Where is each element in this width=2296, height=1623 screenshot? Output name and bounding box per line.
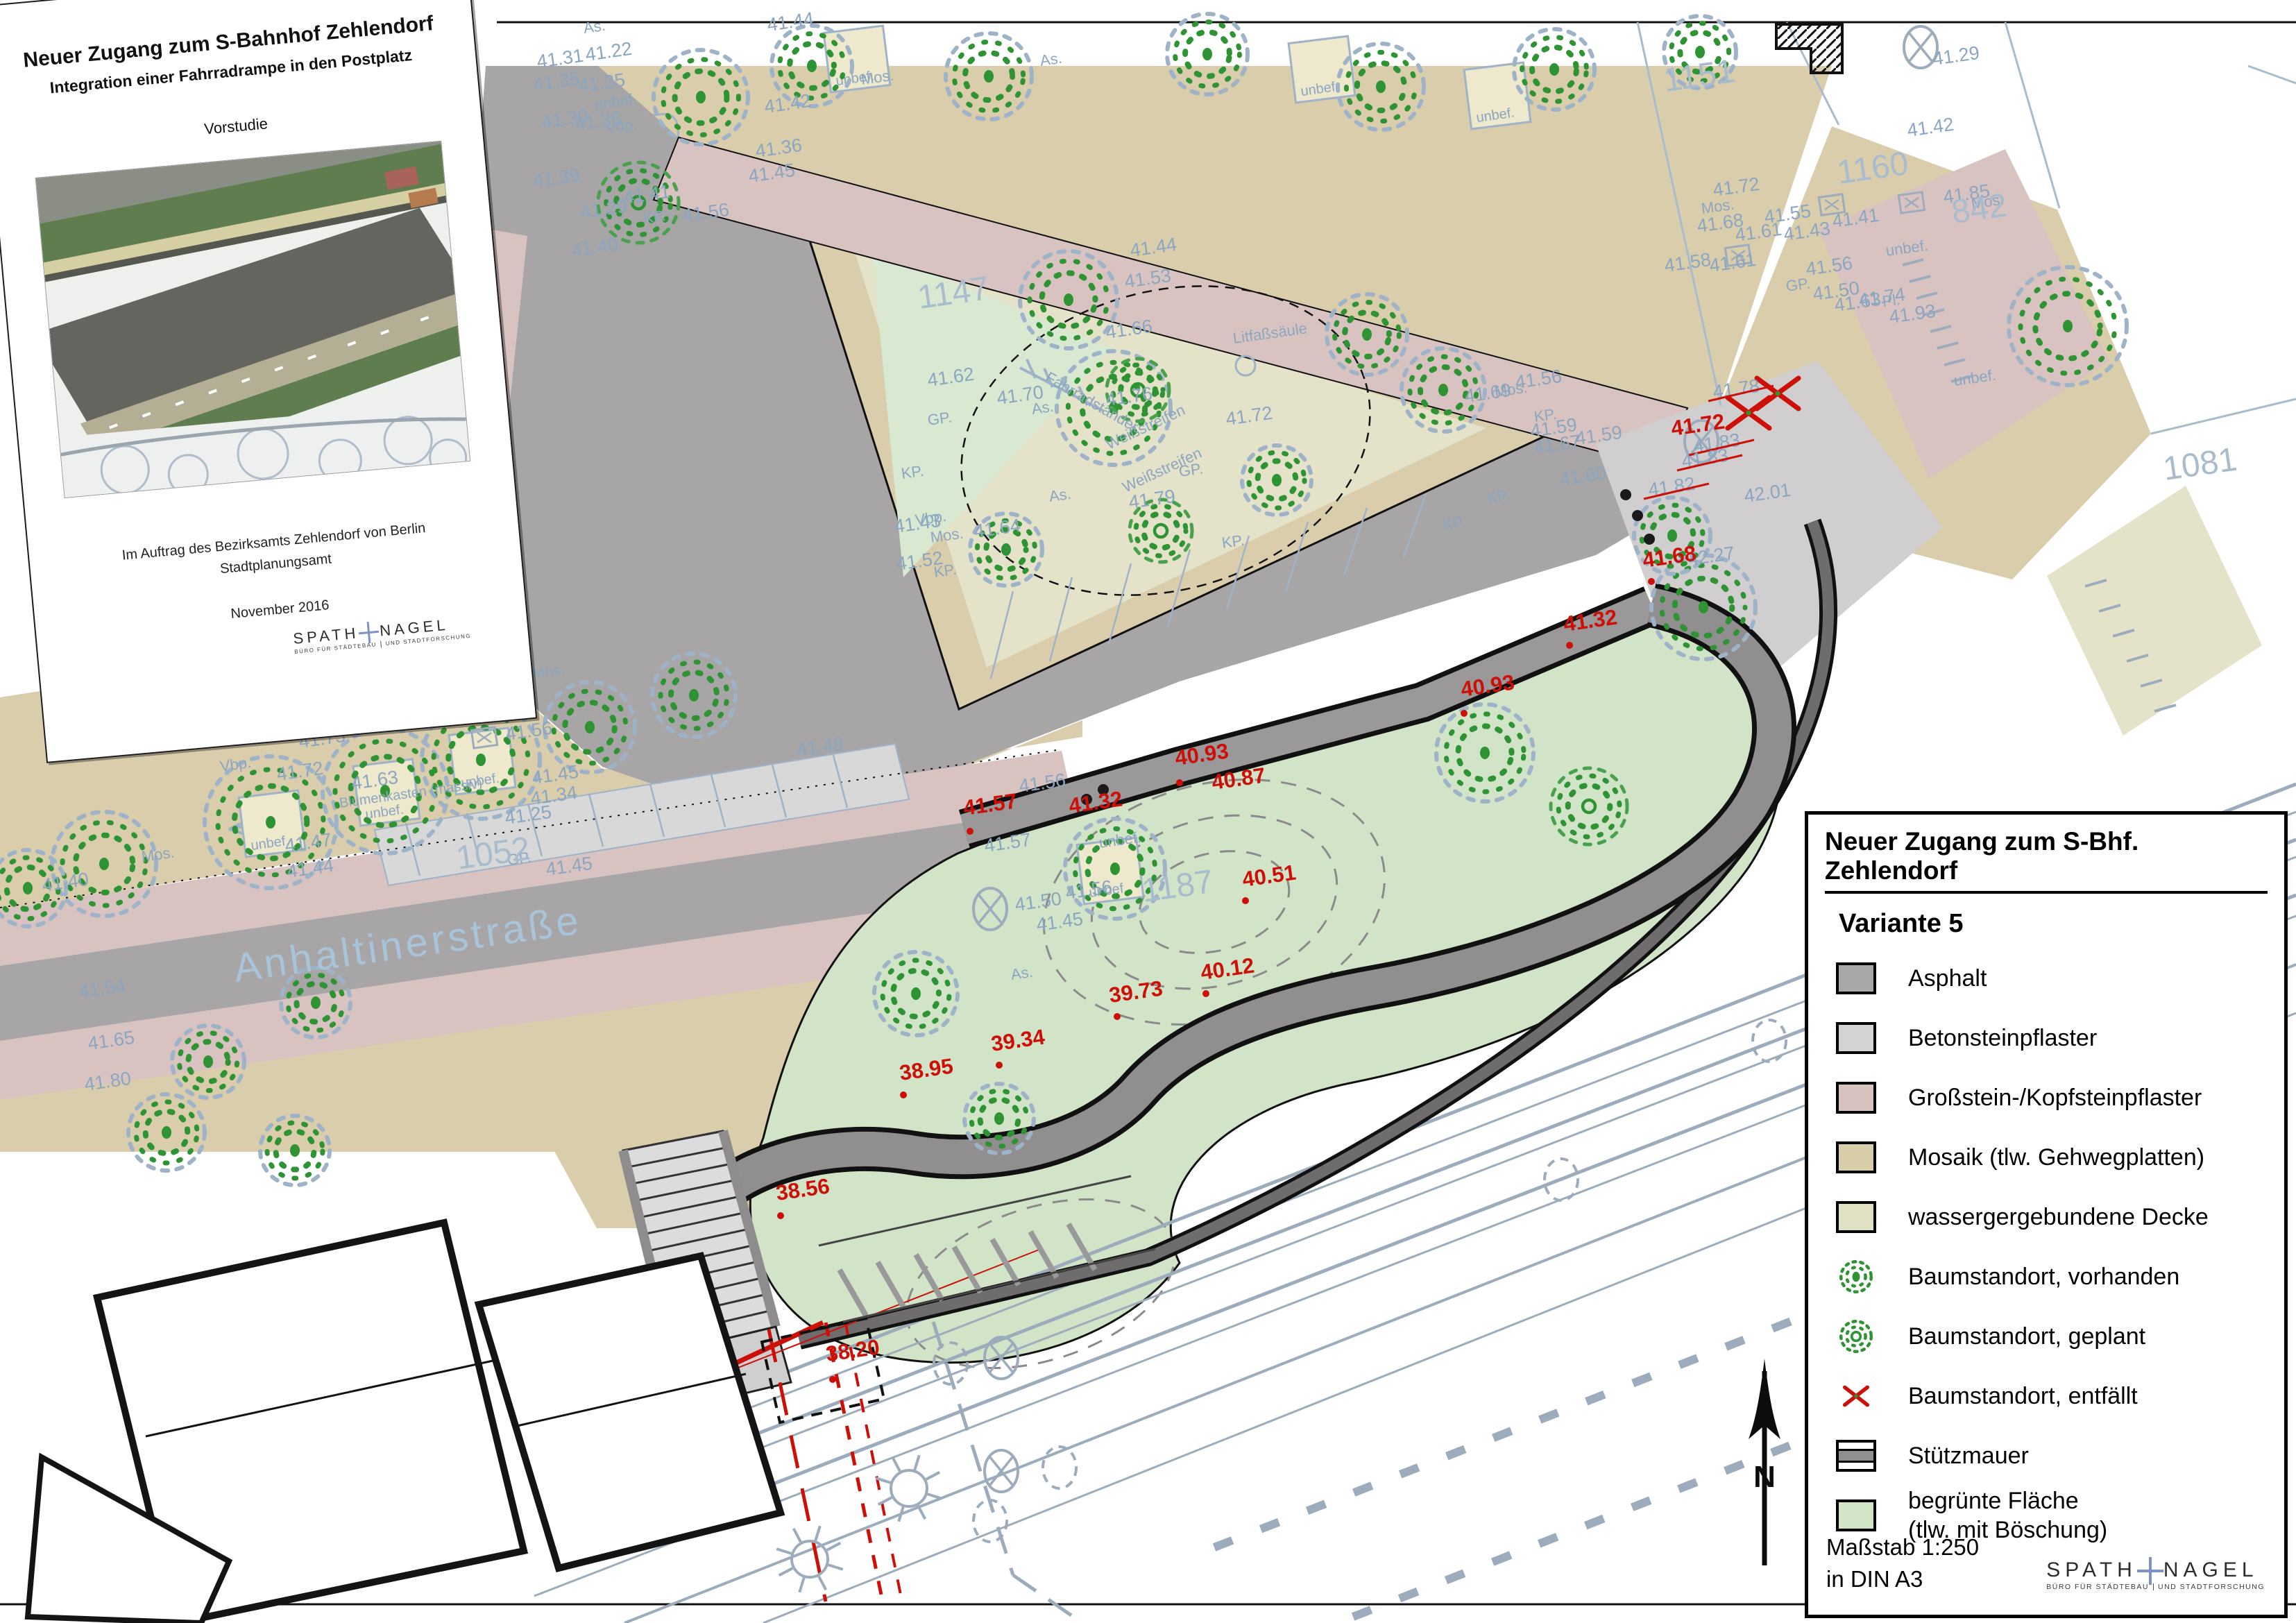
red-survey-dot (1176, 779, 1183, 786)
wall-swatch (1836, 1440, 1876, 1472)
red-survey-dot (1461, 710, 1468, 717)
logo-sub-right: UND STADTFORSCHUNG (2158, 1583, 2265, 1591)
bollard-dot (1620, 489, 1631, 500)
legend-item-label: Stützmauer (1908, 1441, 2029, 1471)
elevation-label: 41.44 (766, 8, 815, 35)
legend-item-label: Baumstandort, entfällt (1908, 1382, 2138, 1411)
legend-title: Neuer Zugang zum S-Bhf. Zehlendorf (1825, 827, 2268, 894)
site-plan-sheet: unbef.unbef.unbef.unbef.unbef.unbef.unbe… (0, 0, 2296, 1623)
firm-logo: SPATH NAGEL BÜRO FÜR STÄDTEBAUUND STADTF… (292, 614, 471, 656)
elevation-label: KP. (1441, 513, 1466, 533)
elevation-label: KP. (933, 561, 958, 581)
parcel-number: 842 (1949, 187, 2009, 231)
elevation-label: KP. (1486, 486, 1511, 507)
elevation-label: GP. (1177, 459, 1204, 480)
legend-item-wasser: wassergergebundene Decke (1825, 1187, 2268, 1247)
legend-item-tree-planned: Baumstandort, geplant (1825, 1307, 2268, 1366)
elevation-label: KP. (642, 207, 667, 227)
red-survey-dot (1566, 642, 1573, 649)
bollard-dot (1644, 534, 1655, 545)
red-survey-dot (1114, 1013, 1121, 1020)
legend-item-label: Mosaik (tlw. Gehwegplatten) (1908, 1143, 2204, 1173)
legend-item-label: Großstein-/Kopfsteinpflaster (1908, 1083, 2202, 1113)
mosaik-swatch (1836, 1141, 1876, 1173)
legend-box: Neuer Zugang zum S-Bhf. Zehlendorf Varia… (1805, 811, 2288, 1618)
legend-item-mosaik: Mosaik (tlw. Gehwegplatten) (1825, 1128, 2268, 1187)
legend-item-asphalt: Asphalt (1825, 949, 2268, 1008)
logo-word-left: SPATH (2046, 1558, 2137, 1582)
wasser-swatch (1836, 1201, 1876, 1233)
beton-swatch (1836, 1022, 1876, 1054)
elevation-label: As. (1039, 49, 1063, 69)
red-survey-dot (1202, 990, 1209, 997)
elevation-label: GP. (926, 408, 953, 429)
elevation-label: KP. (900, 462, 925, 482)
legend-scale: Maßstab 1:250 in DIN A3 (1826, 1531, 1979, 1595)
red-survey-dot (996, 1062, 1003, 1069)
logo-sub-left: BÜRO FÜR STÄDTEBAU (2046, 1583, 2149, 1591)
legend-item-beton: Betonsteinpflaster (1825, 1008, 2268, 1068)
red-survey-dot (777, 1212, 784, 1219)
red-survey-dot (967, 828, 973, 835)
scale-line1: Maßstab 1:250 (1826, 1531, 1979, 1563)
gross-swatch (1836, 1082, 1876, 1114)
red-survey-dot (1242, 897, 1249, 904)
tree-pit: unbef. (1464, 62, 1531, 129)
legend-item-tree-removed: Baumstandort, entfällt (1825, 1366, 2268, 1426)
elevation-label: 41.42 (1906, 114, 1955, 141)
red-survey-dot (1648, 578, 1655, 585)
tree-existing-icon (1836, 1261, 1876, 1293)
legend-item-wall: Stützmauer (1825, 1426, 2268, 1486)
elevation-label: 41.29 (1932, 42, 1981, 69)
asphalt-swatch (1836, 962, 1876, 994)
elevation-label: 41.22 (584, 38, 633, 65)
red-survey-dot (900, 1091, 907, 1098)
tree-pit: unbef. (1289, 36, 1355, 103)
dashed-circle-symbol (1753, 1020, 1786, 1062)
bollard-dot (1632, 510, 1643, 521)
legend-item-label: Baumstandort, vorhanden (1908, 1262, 2179, 1292)
legend-item-label: Baumstandort, geplant (1908, 1322, 2145, 1352)
legend-item-label: Asphalt (1908, 964, 1987, 994)
legend-item-gross: Großstein-/Kopfsteinpflaster (1825, 1068, 2268, 1128)
tree-removed-icon (1836, 1380, 1876, 1412)
elevation-label: GP. (1785, 274, 1811, 295)
parcel-number: 1081 (2161, 441, 2239, 488)
elevation-label: KP. (1221, 532, 1245, 552)
logo-cross-icon (359, 622, 379, 642)
elevation-label: As. (582, 17, 606, 37)
elevation-label: As. (1030, 398, 1055, 418)
legend-item-label: wassergergebundene Decke (1908, 1203, 2209, 1232)
elevation-label: As. (1010, 963, 1034, 983)
red-survey-dot (829, 1376, 836, 1383)
cover-aerial-photo (35, 141, 471, 498)
legend-item-tree-existing: Baumstandort, vorhanden (1825, 1247, 2268, 1307)
elevation-label: As. (1048, 485, 1072, 505)
circle-x-symbol (1904, 26, 1937, 68)
tree-planned-icon (1836, 1320, 1876, 1352)
legend-variant: Variante 5 (1839, 909, 2268, 939)
north-arrow: N (1733, 1350, 1796, 1579)
logo-cross-icon (2138, 1558, 2162, 1582)
north-label: N (1753, 1460, 1776, 1495)
green-swatch (1836, 1499, 1876, 1531)
legend-item-label: Betonsteinpflaster (1908, 1023, 2097, 1053)
firm-logo: SPATH NAGEL BÜRO FÜR STÄDTEBAUUND STADTF… (2046, 1558, 2265, 1591)
scale-line2: in DIN A3 (1826, 1563, 1979, 1595)
logo-word-right: NAGEL (2163, 1558, 2259, 1582)
cover-page-inset: Neuer Zugang zum S-Bahnhof Zehlendorf In… (0, 0, 537, 763)
